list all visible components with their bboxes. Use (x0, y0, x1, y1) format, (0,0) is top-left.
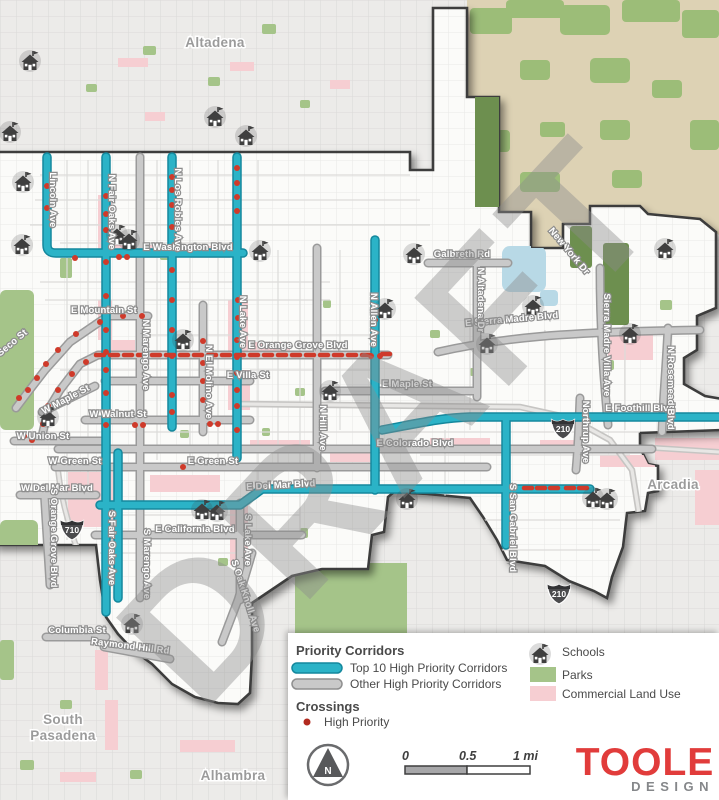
map-figure: 710 210 210 E Washington Blvd E Mountain… (0, 0, 719, 800)
svg-text:South: South (43, 712, 83, 727)
svg-text:710: 710 (65, 525, 79, 535)
legend-high-priority-label: High Priority (324, 715, 389, 729)
crossing-dot (43, 361, 49, 367)
svg-text:210: 210 (556, 424, 570, 434)
legend-crossings-title: Crossings (296, 699, 360, 714)
school-icon (118, 229, 140, 251)
svg-text:Pasadena: Pasadena (30, 728, 96, 743)
school-icon (619, 323, 641, 345)
crossing-dot (34, 375, 40, 381)
crossing-dot (169, 392, 175, 398)
svg-text:W Green St: W Green St (48, 456, 102, 467)
svg-text:E Washington Blvd: E Washington Blvd (143, 242, 233, 253)
crossing-dot (16, 395, 22, 401)
school-icon (19, 50, 41, 72)
crossing-dot (25, 387, 31, 393)
school-icon (596, 488, 618, 510)
crossing-dot (103, 422, 109, 428)
crossing-dot (124, 254, 130, 260)
svg-text:N Lake Ave: N Lake Ave (237, 296, 248, 349)
crossing-dot (234, 403, 240, 409)
crossing-dot (69, 371, 75, 377)
crossing-dot (103, 293, 109, 299)
crossing-dot (73, 331, 79, 337)
legend-panel: Priority Corridors Top 10 High Priority … (288, 633, 719, 800)
school-icon (172, 329, 194, 351)
crossing-dot (132, 422, 138, 428)
svg-text:N Los Robles Ave: N Los Robles Ave (172, 168, 183, 251)
school-icon (12, 171, 34, 193)
crossing-dot (234, 180, 240, 186)
legend-top10-label: Top 10 High Priority Corridors (350, 661, 507, 675)
svg-text:S San Gabriel Blvd: S San Gabriel Blvd (507, 484, 518, 573)
crossing-dot (83, 359, 89, 365)
crossing-dot (207, 421, 213, 427)
svg-text:W Walnut St: W Walnut St (89, 409, 147, 420)
svg-text:TOOLE: TOOLE (576, 741, 715, 784)
svg-text:E Villa St: E Villa St (227, 370, 270, 381)
crossing-dot (140, 422, 146, 428)
legend-commercial-label: Commercial Land Use (562, 687, 681, 701)
svg-text:Altadena: Altadena (185, 35, 245, 50)
crossing-dot (169, 297, 175, 303)
crossing-dot (169, 327, 175, 333)
crossing-dot (169, 409, 175, 415)
school-icon (204, 106, 226, 128)
svg-text:W Union St: W Union St (17, 431, 70, 442)
other-swatch (292, 679, 342, 689)
svg-text:Northrup Ave: Northrup Ave (580, 401, 591, 463)
svg-text:DESIGN: DESIGN (631, 779, 714, 794)
school-icon (0, 121, 21, 143)
commercial-swatch (530, 686, 556, 701)
legend-schools-label: Schools (562, 645, 605, 659)
svg-text:N Fair Oaks Ave: N Fair Oaks Ave (106, 174, 117, 249)
crossing-dot (215, 421, 221, 427)
svg-text:0.5: 0.5 (459, 749, 477, 763)
svg-text:S Orange Grove Blvd: S Orange Grove Blvd (48, 488, 59, 587)
svg-text:N El Molino Ave: N El Molino Ave (203, 345, 214, 419)
crossing-dot (234, 194, 240, 200)
crossing-dot (55, 387, 61, 393)
legend-other-label: Other High Priority Corridors (350, 677, 501, 691)
svg-text:Columbia St: Columbia St (48, 625, 106, 636)
svg-text:210: 210 (552, 589, 566, 599)
crossing-dot (234, 387, 240, 393)
crossing-dot (103, 327, 109, 333)
svg-text:Lincoln Ave: Lincoln Ave (47, 172, 58, 227)
school-icon (11, 234, 33, 256)
legend-corridors-title: Priority Corridors (296, 643, 404, 658)
crossing-dot (55, 347, 61, 353)
crossing-dot (72, 255, 78, 261)
north-arrow: N (308, 745, 348, 785)
crossing-dot (97, 319, 103, 325)
school-icon (249, 240, 271, 262)
school-legend-icon (529, 643, 551, 665)
crossing-dot (234, 208, 240, 214)
svg-text:1 mi: 1 mi (513, 749, 539, 763)
svg-text:N Rosemead Blvd: N Rosemead Blvd (665, 346, 676, 430)
legend-parks-label: Parks (562, 668, 593, 682)
svg-text:Alhambra: Alhambra (201, 768, 266, 783)
top10-swatch (292, 663, 342, 673)
crossing-dot (103, 259, 109, 265)
parks-swatch (530, 667, 556, 682)
crossing-dot (139, 313, 145, 319)
svg-text:E Mountain St: E Mountain St (71, 305, 138, 316)
crossing-dot (169, 267, 175, 273)
crossing-dot (234, 165, 240, 171)
crossing-dot (180, 464, 186, 470)
crossing-dot (200, 338, 206, 344)
crossing-dot (116, 254, 122, 260)
high-priority-dot (304, 719, 311, 726)
svg-text:N Marengo Ave: N Marengo Ave (140, 319, 151, 390)
svg-text:0: 0 (402, 749, 409, 763)
svg-text:E Foothill Blvd: E Foothill Blvd (605, 403, 675, 414)
crossing-dot (103, 367, 109, 373)
school-icon (235, 125, 257, 147)
svg-text:N: N (324, 766, 331, 777)
crossing-dot (103, 390, 109, 396)
map-canvas: 710 210 210 E Washington Blvd E Mountain… (0, 0, 719, 800)
svg-text:Arcadia: Arcadia (647, 477, 699, 492)
